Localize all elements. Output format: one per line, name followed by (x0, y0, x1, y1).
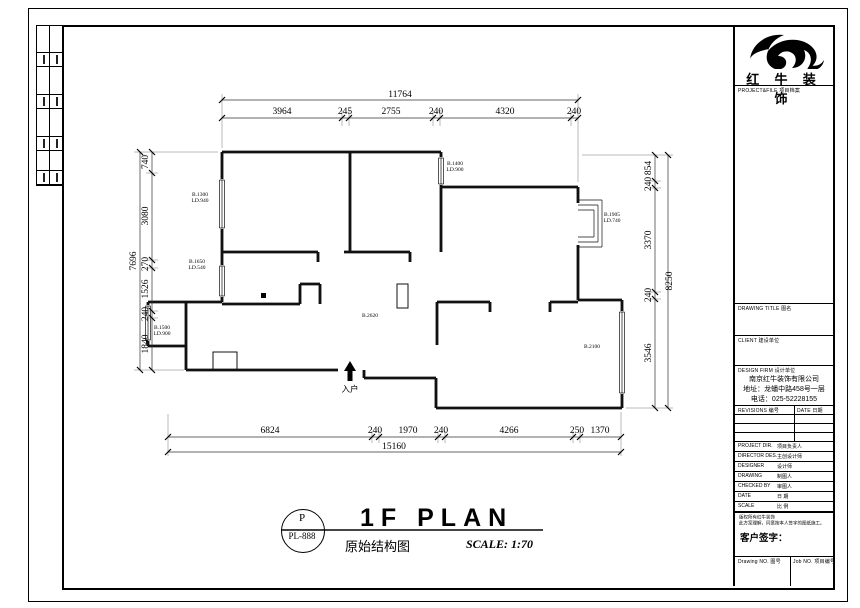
date-col-label: DATE 日期 (797, 407, 823, 414)
tb-divider (735, 491, 833, 492)
tb-divider (735, 471, 833, 472)
dim-bottom-total: 15160 (382, 442, 406, 452)
client-signature-label: 客户签字： (740, 530, 788, 544)
extension-lines (134, 94, 673, 456)
drawing-no-divider (790, 556, 791, 586)
revisions-row-line (735, 432, 833, 433)
checked-by-label-cn: 审图人 (777, 483, 792, 490)
dim-right-total: 8250 (665, 271, 675, 290)
tb-divider (735, 511, 833, 513)
drawing-person-label-cn: 制图人 (777, 473, 792, 480)
dim-bottom-segment-5: 250 (570, 426, 585, 436)
redbull-logo-icon (744, 29, 824, 69)
designer-label: DESIGNER (738, 463, 764, 469)
drawing-no-label: Drawing NO. 图号 (738, 558, 781, 565)
date-row-label-cn: 日 期 (777, 493, 788, 500)
dim-left-segment-3: 1526 (141, 279, 151, 298)
date-row-label: DATE (738, 493, 751, 499)
project-file-label: PROJECT&FILE 项目档案 (738, 87, 800, 94)
annotation-1-line-1: LD.540 (189, 265, 206, 271)
tb-divider (735, 303, 833, 304)
drawing-title-label: DRAWING TITLE 图名 (738, 305, 791, 312)
dim-top-segment-0: 3964 (273, 107, 292, 117)
entrance-label: 入户 (341, 384, 358, 394)
entrance-arrow-icon (344, 361, 356, 381)
entry-cabinet-block (213, 352, 237, 370)
company-phone: 电话：025-52228155 (735, 395, 833, 405)
stamp-letter: P (281, 512, 323, 524)
dim-top-segment-2: 2755 (382, 107, 401, 117)
dim-left-segment-4: 240 (141, 307, 151, 322)
drawing-sheet: 3964245275524043202401176468242401970240… (0, 0, 860, 608)
tb-divider (735, 451, 833, 452)
company-address: 地址：龙蟠中路458号一层 (735, 385, 833, 395)
tb-divider (735, 481, 833, 482)
dim-top-segment-1: 245 (338, 107, 353, 117)
plan-scale: SCALE: 1:70 (466, 537, 533, 552)
tb-divider (735, 405, 833, 406)
tb-divider (735, 461, 833, 462)
dim-right-segment-3: 240 (644, 288, 654, 303)
scale-row-label-cn: 比 例 (777, 503, 788, 510)
project-dir-label: PROJECT DIR. (738, 443, 773, 449)
dim-bottom-segment-0: 6824 (261, 426, 280, 436)
title-block: 红 牛 装 饰 PROJECT&FILE 项目档案 DRAWING TITLE … (733, 25, 833, 586)
revisions-row-line (735, 414, 833, 415)
dim-bottom-segment-4: 4266 (500, 426, 519, 436)
tb-divider (735, 556, 833, 557)
job-no-label: Job NO. 项目编号 (793, 558, 835, 565)
plan-title-en: 1F PLAN (360, 504, 513, 533)
dim-left-segment-2: 270 (141, 257, 151, 272)
designer-label-cn: 设计师 (777, 463, 792, 470)
door-jamb-block (397, 284, 408, 308)
tb-divider (735, 85, 833, 86)
company-name: 南京红牛装饰有限公司 (735, 375, 833, 385)
annotation-4-line-1: LD.740 (604, 218, 621, 224)
design-firm-label: DESIGN FIRM 设计单位 (738, 367, 795, 374)
column-dot (261, 293, 266, 298)
bay-window (578, 200, 602, 247)
agreement-note: 此方案理解，同意按本人签字的图纸施工。 (739, 520, 825, 526)
director-des-label: DIRECTOR DES. (738, 453, 777, 459)
dim-left-segment-1: 3080 (141, 206, 151, 225)
dim-right-segment-1: 240 (644, 177, 654, 192)
tb-divider (735, 365, 833, 366)
dim-bottom-segment-1: 240 (368, 426, 383, 436)
dim-top-segment-5: 240 (567, 107, 582, 117)
annotation-0-line-1: LD.940 (192, 198, 209, 204)
dim-bottom-segment-2: 1970 (399, 426, 418, 436)
dim-bottom-segment-3: 240 (434, 426, 449, 436)
tb-divider (735, 441, 833, 442)
director-des-label-cn: 主创设计师 (777, 453, 802, 460)
dim-top-segment-3: 240 (429, 107, 444, 117)
stamp-code: PL-888 (281, 531, 323, 541)
plan-title-cn: 原始结构图 (345, 536, 410, 555)
revisions-label: REVISIONS 编号 (738, 407, 779, 414)
dim-right-segment-2: 3370 (644, 230, 654, 249)
dim-left-total: 7696 (129, 251, 139, 270)
dim-left-segment-5: 1840 (141, 334, 151, 353)
annotation-3-line-1: LD.900 (447, 167, 464, 173)
scale-row-label: SCALE (738, 503, 754, 509)
dim-top-segment-4: 4320 (496, 107, 515, 117)
tb-divider (735, 335, 833, 336)
project-dir-label-cn: 项目负责人 (777, 443, 802, 450)
annotation-2-line-1: LD.900 (154, 331, 171, 337)
dim-left-segment-0: 740 (141, 155, 151, 170)
dim-right-segment-4: 3546 (644, 343, 654, 362)
checked-by-label: CHECKED BY (738, 483, 771, 489)
dim-top-total: 11764 (388, 90, 412, 100)
dim-right-segment-0: 854 (644, 161, 654, 176)
windows (145, 157, 625, 394)
tb-divider (735, 501, 833, 502)
drawing-person-label: DRAWING (738, 473, 762, 479)
revisions-row-line (735, 423, 833, 424)
client-label: CLIENT 建设单位 (738, 337, 779, 344)
plan-labels: 3964245275524043202401176468242401970240… (129, 90, 675, 452)
annotation-6-line-0: B.2100 (584, 344, 600, 350)
dim-bottom-segment-6: 1370 (591, 426, 610, 436)
annotation-5-line-0: B.2620 (362, 313, 378, 319)
